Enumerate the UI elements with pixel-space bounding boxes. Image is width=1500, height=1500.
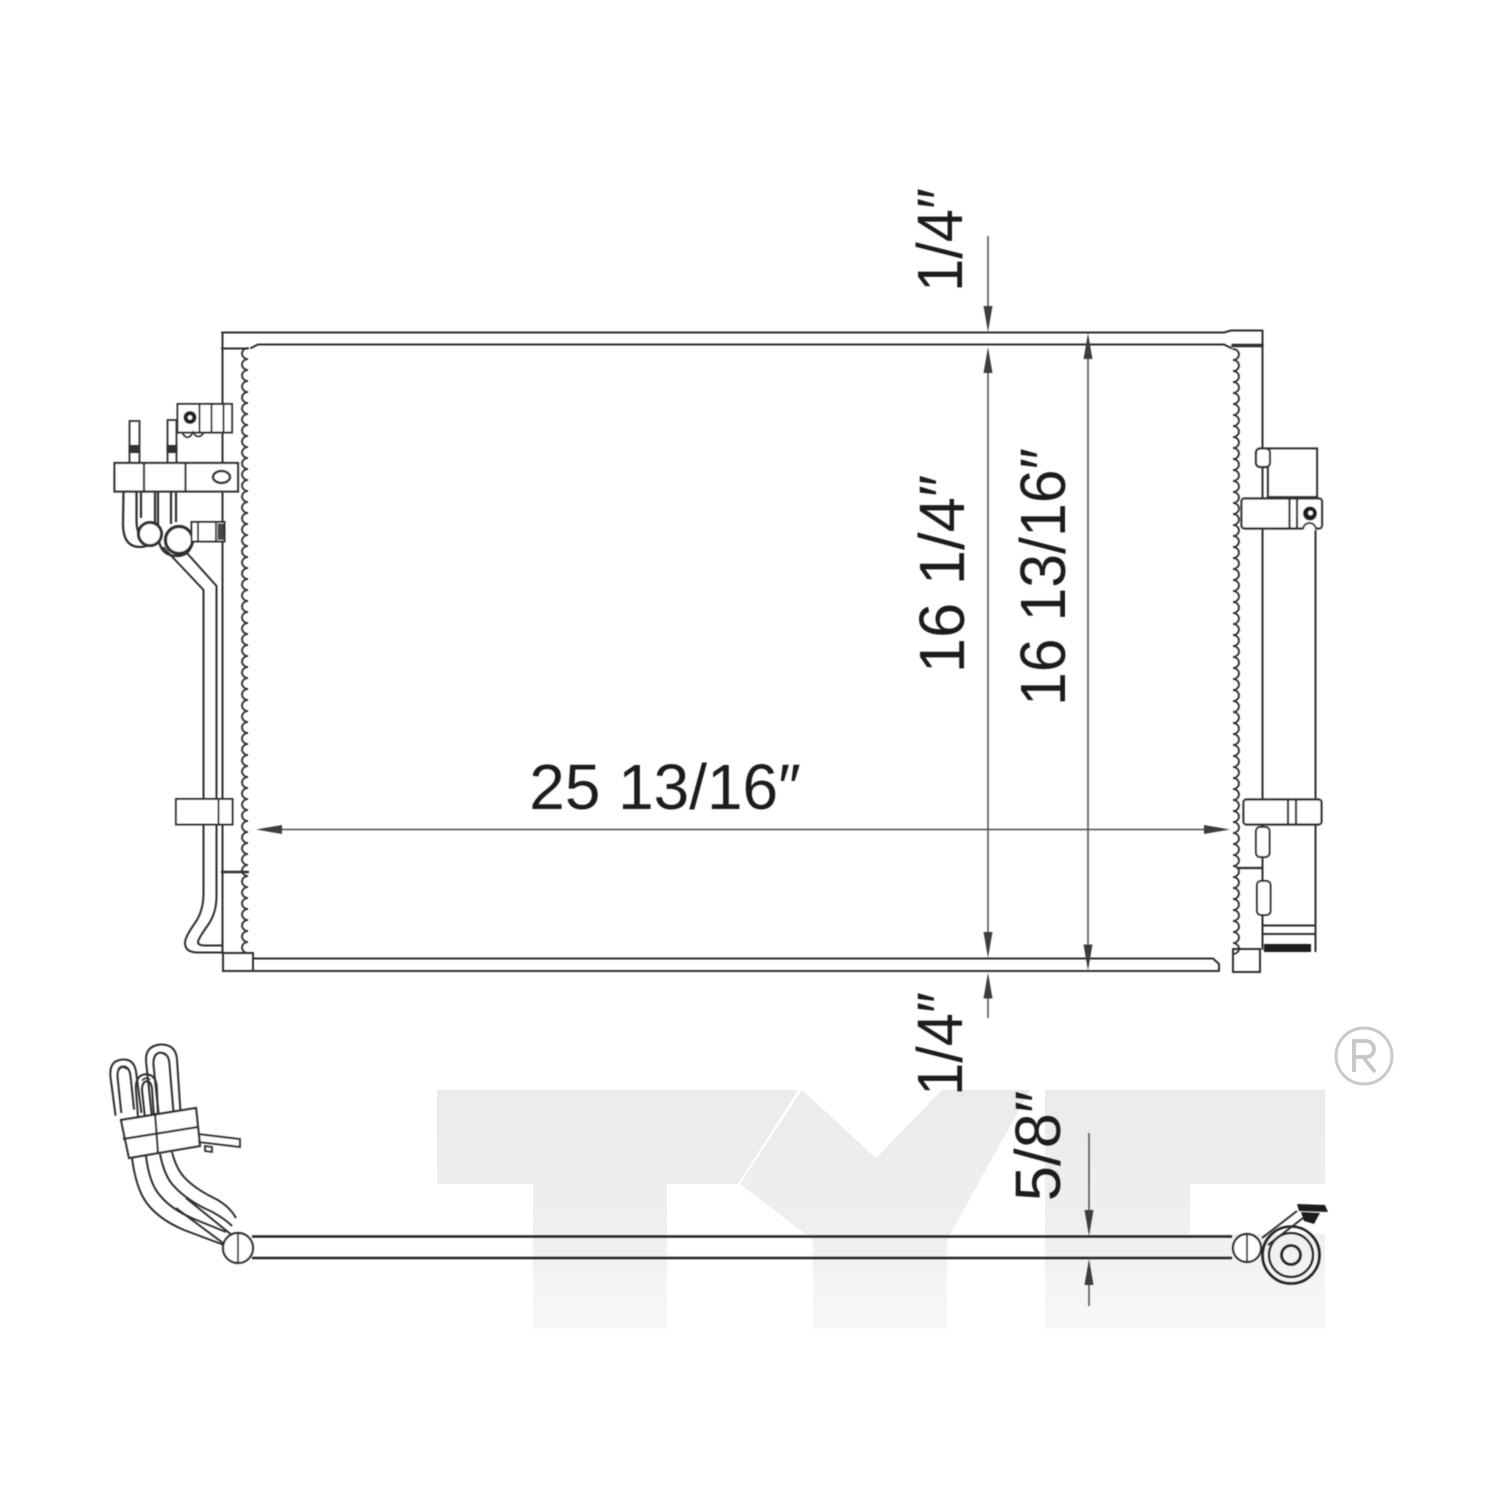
svg-text:16 1/4″: 16 1/4″ [907, 475, 978, 674]
svg-text:5/8″: 5/8″ [1003, 1091, 1074, 1202]
svg-text:16 13/16″: 16 13/16″ [1008, 448, 1080, 706]
svg-text:25 13/16″: 25 13/16″ [529, 751, 800, 823]
svg-text:1/4″: 1/4″ [905, 188, 976, 292]
svg-text:1/4″: 1/4″ [905, 992, 976, 1096]
